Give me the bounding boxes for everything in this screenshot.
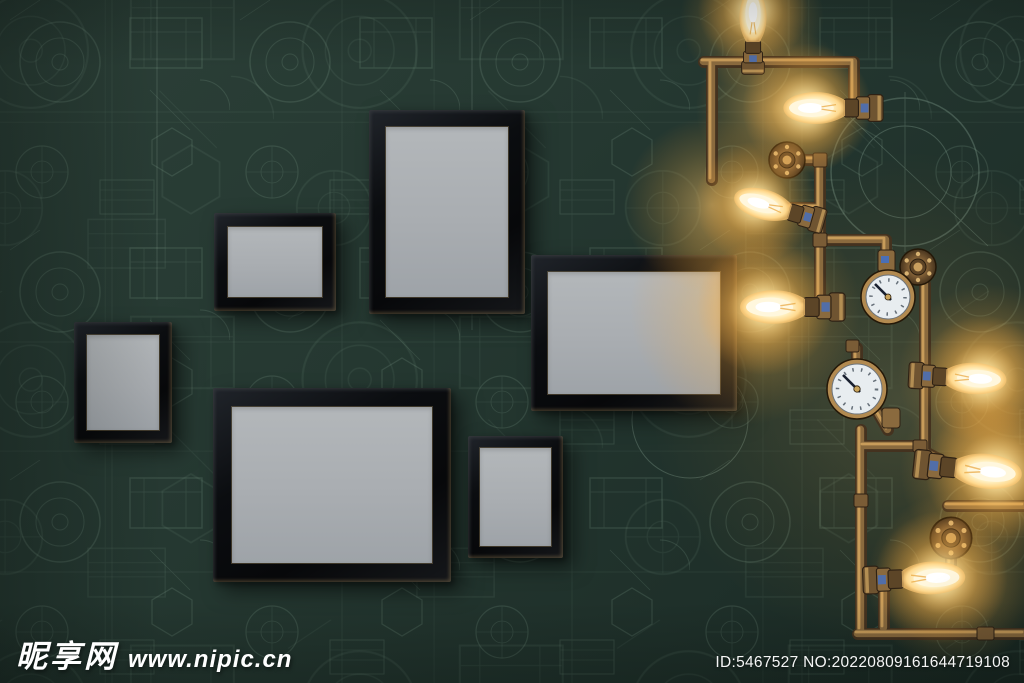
watermark-id: ID:5467527 NO:20220809161644719108 — [715, 654, 1010, 672]
watermark-site: 昵享网www.nipic.cn — [16, 631, 292, 676]
vignette-layer — [0, 0, 1024, 683]
watermark-site-name: 昵享网 — [16, 639, 118, 674]
photo-canvas: 昵享网www.nipic.cn ID:5467527 NO:2022080916… — [0, 0, 1024, 683]
watermark-site-url: www.nipic.cn — [128, 646, 292, 673]
